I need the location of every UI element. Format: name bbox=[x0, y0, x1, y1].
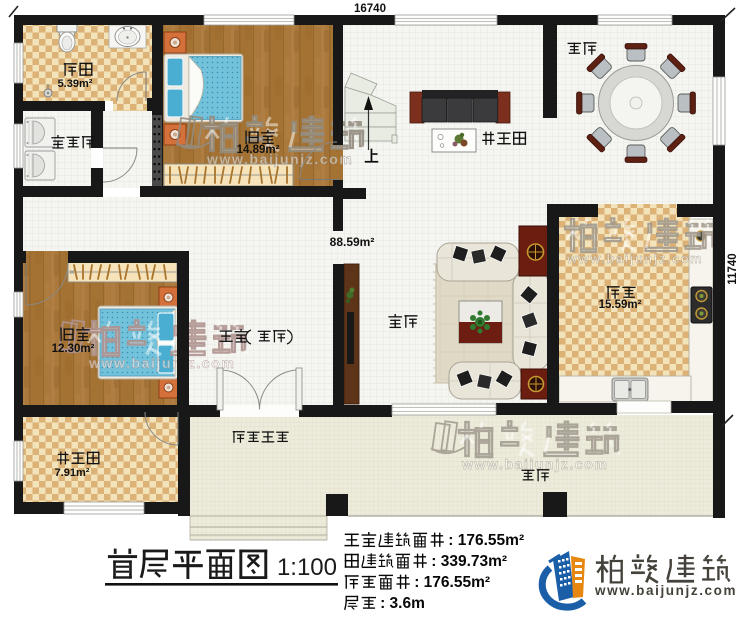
svg-text:www.baijunjz.com: www.baijunjz.com bbox=[206, 151, 353, 167]
svg-text:5.39m²: 5.39m² bbox=[58, 78, 93, 90]
svg-text:www.baijunjz.com: www.baijunjz.com bbox=[594, 583, 737, 598]
svg-text:14.89m²: 14.89m² bbox=[237, 144, 280, 156]
svg-text:www.baijunjz.com: www.baijunjz.com bbox=[461, 456, 608, 472]
svg-text:7.91m²: 7.91m² bbox=[55, 467, 90, 479]
svg-text:: 339.73m²: : 339.73m² bbox=[431, 553, 507, 570]
svg-text:11740: 11740 bbox=[727, 253, 739, 284]
svg-text:www.baijunjz.com: www.baijunjz.com bbox=[88, 355, 235, 371]
svg-text:: 3.6m: : 3.6m bbox=[380, 595, 425, 612]
svg-text:www.baijunjz.com: www.baijunjz.com bbox=[566, 251, 703, 266]
svg-text:15.59m²: 15.59m² bbox=[599, 299, 642, 311]
svg-text:12.30m²: 12.30m² bbox=[52, 343, 95, 355]
svg-text:88.59m²: 88.59m² bbox=[330, 235, 375, 249]
svg-text:: 176.55m²: : 176.55m² bbox=[448, 532, 524, 549]
svg-text:: 176.55m²: : 176.55m² bbox=[414, 574, 490, 591]
svg-text:16740: 16740 bbox=[354, 3, 386, 15]
svg-text:1:100: 1:100 bbox=[277, 554, 337, 581]
